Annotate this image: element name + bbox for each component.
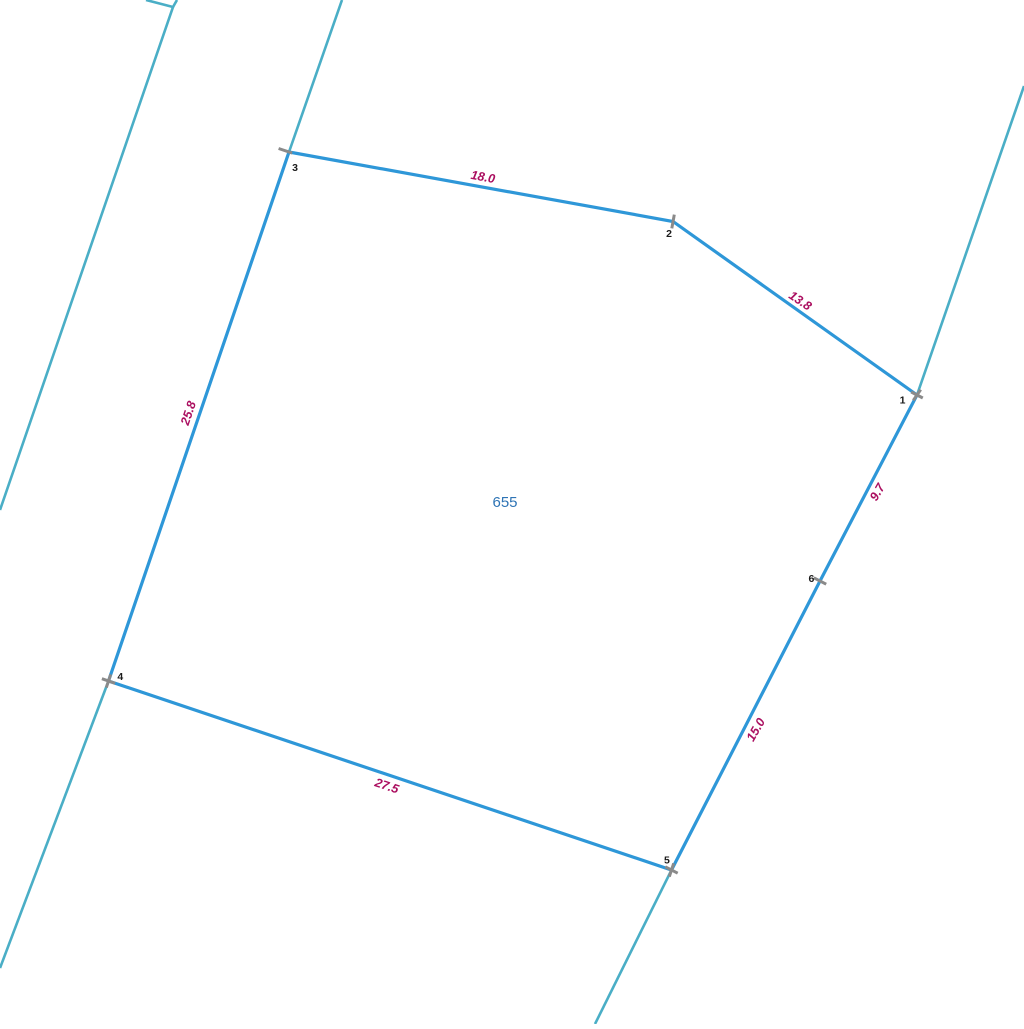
- svg-text:2: 2: [666, 228, 672, 240]
- svg-text:4: 4: [117, 671, 123, 683]
- svg-text:1: 1: [900, 394, 906, 406]
- svg-text:3: 3: [292, 162, 298, 174]
- svg-text:5: 5: [664, 855, 670, 867]
- svg-text:6: 6: [808, 573, 814, 585]
- svg-text:655: 655: [492, 494, 517, 511]
